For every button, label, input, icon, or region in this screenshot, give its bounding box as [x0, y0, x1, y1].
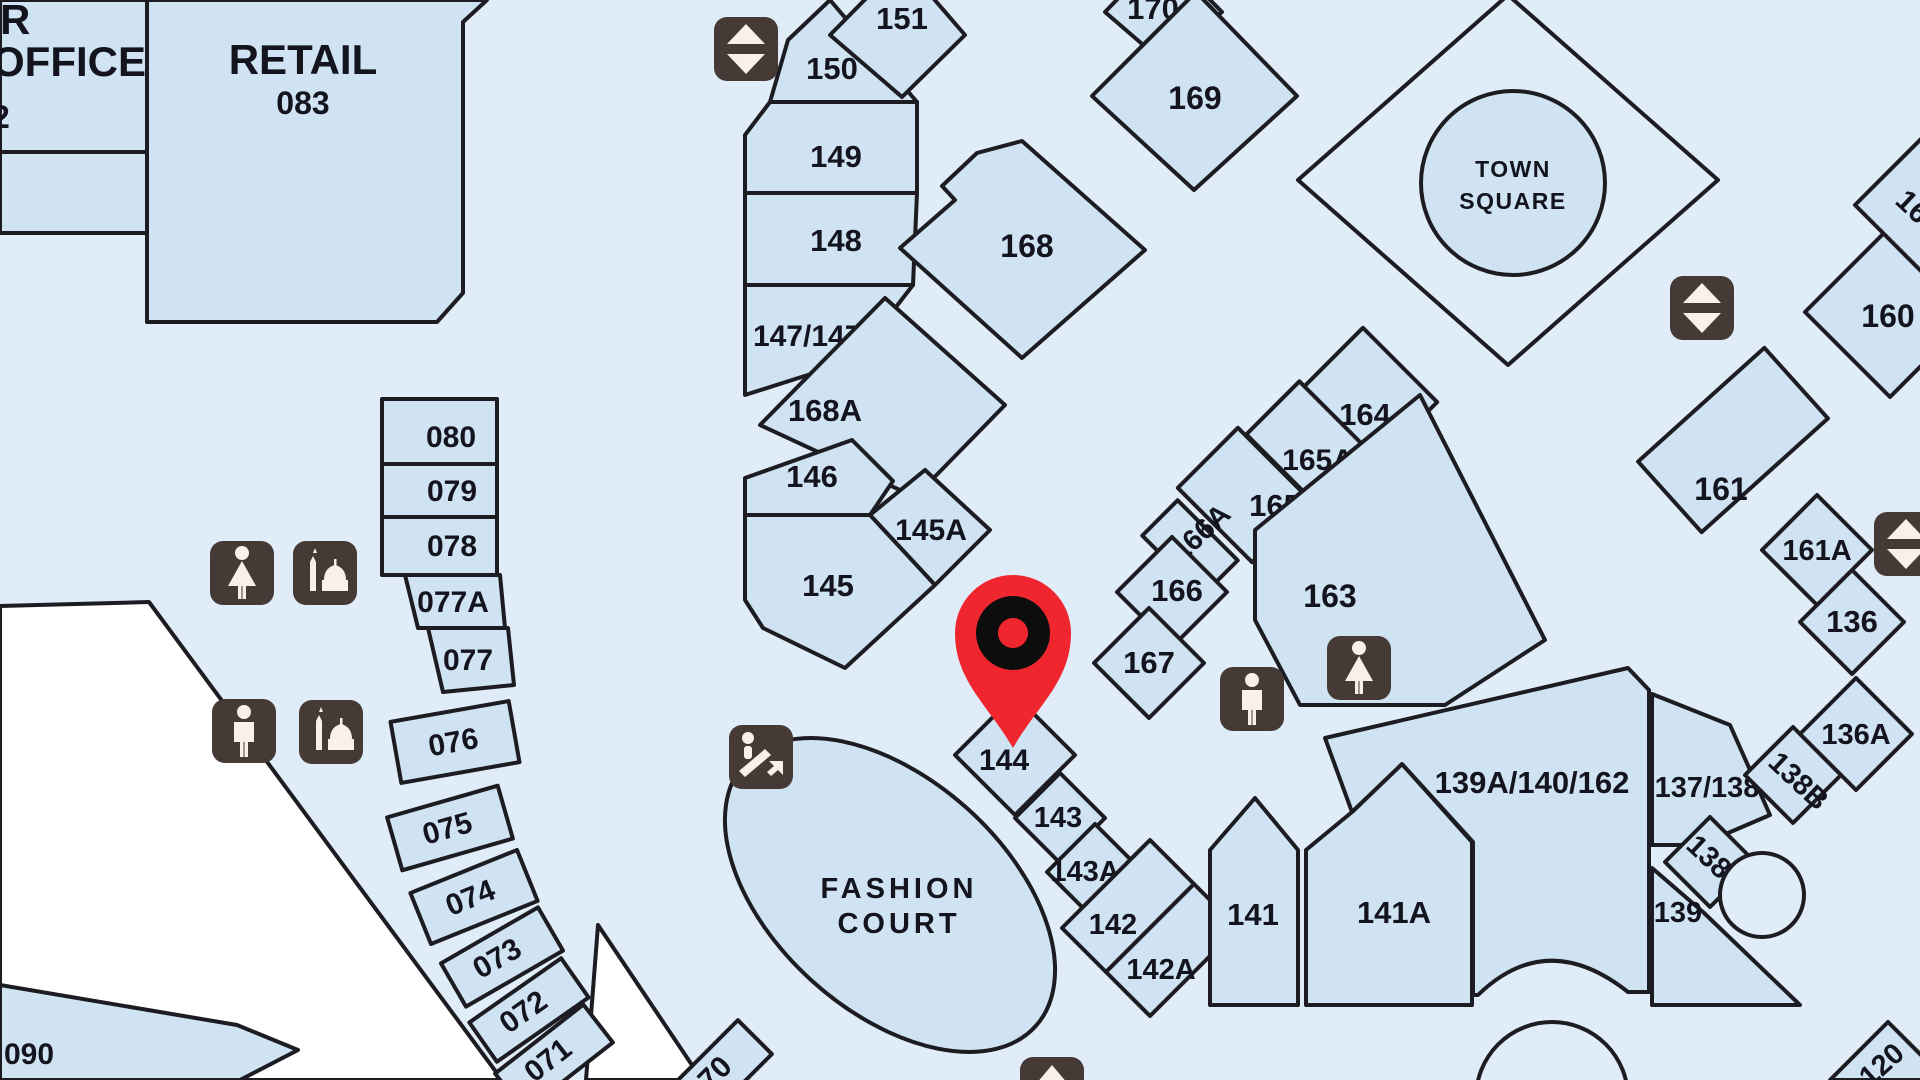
unit-078[interactable]: 078 [382, 517, 497, 575]
kiosk-circle [1720, 853, 1804, 937]
svg-text:163: 163 [1303, 578, 1356, 614]
womens-restroom-icon [1327, 636, 1391, 700]
svg-text:078: 078 [427, 530, 477, 563]
prayer-room-icon [293, 541, 357, 605]
prayer-room-icon [299, 700, 363, 764]
womens-restroom-icon [210, 541, 274, 605]
svg-text:169: 169 [1168, 80, 1221, 116]
unit-office[interactable]: R OFFICE 2 [0, 0, 147, 152]
elevator-icon [714, 17, 778, 81]
svg-text:139: 139 [1654, 897, 1702, 929]
elevator-icon [1670, 276, 1734, 340]
svg-text:136A: 136A [1821, 719, 1890, 751]
svg-text:168: 168 [1000, 228, 1053, 264]
town-square-label: TOWN [1475, 156, 1551, 182]
svg-text:166: 166 [1151, 573, 1203, 608]
svg-text:142: 142 [1089, 909, 1137, 941]
unit-080[interactable]: 080 [382, 399, 497, 464]
elevator-icon [1874, 512, 1920, 576]
svg-text:150: 150 [806, 51, 858, 86]
unit-148[interactable]: 148 [745, 193, 917, 285]
svg-text:141: 141 [1227, 897, 1279, 932]
svg-text:090: 090 [4, 1038, 54, 1071]
svg-text:142A: 142A [1126, 954, 1195, 986]
svg-text:139A/140/162: 139A/140/162 [1435, 765, 1630, 800]
mens-restroom-icon [1220, 667, 1284, 731]
office-partial-label: R [0, 0, 30, 43]
retail-number: 083 [276, 85, 329, 121]
svg-text:167: 167 [1123, 645, 1175, 680]
svg-text:145A: 145A [895, 514, 967, 547]
svg-text:145: 145 [802, 568, 854, 603]
svg-text:148: 148 [810, 223, 862, 258]
unit-149[interactable]: 149 [745, 102, 917, 193]
unit-retail-083[interactable]: RETAIL 083 [147, 0, 487, 322]
mens-restroom-icon [212, 699, 276, 763]
unit-077a[interactable]: 077A [405, 575, 505, 628]
fashion-court-label: COURT [837, 908, 960, 940]
svg-text:151: 151 [876, 1, 928, 36]
svg-text:077: 077 [443, 644, 493, 677]
unit-077[interactable]: 077 [428, 628, 514, 692]
svg-text:136: 136 [1826, 604, 1878, 639]
office-label: OFFICE [0, 38, 146, 85]
map-canvas: TOWN SQUARE FASHION COURT R OFFICE 2 RET… [0, 0, 1920, 1080]
svg-text:143: 143 [1034, 802, 1082, 834]
unit-unlabeled[interactable] [0, 152, 147, 233]
mall-map: TOWN SQUARE FASHION COURT R OFFICE 2 RET… [0, 0, 1920, 1080]
unit-079[interactable]: 079 [382, 464, 497, 517]
svg-text:137/138: 137/138 [1655, 772, 1760, 804]
svg-text:141A: 141A [1357, 895, 1431, 930]
svg-text:161: 161 [1694, 471, 1747, 507]
svg-text:160: 160 [1861, 298, 1914, 334]
escalator-icon [729, 725, 793, 789]
office-number: 2 [0, 99, 10, 135]
svg-text:079: 079 [427, 475, 477, 508]
svg-text:080: 080 [426, 421, 476, 454]
svg-text:146: 146 [786, 459, 838, 494]
fashion-court-label: FASHION [821, 873, 978, 905]
svg-text:161A: 161A [1782, 535, 1851, 567]
svg-text:168A: 168A [788, 393, 862, 428]
retail-label: RETAIL [229, 36, 378, 83]
svg-text:149: 149 [810, 139, 862, 174]
svg-text:144: 144 [979, 744, 1029, 777]
town-square-label: SQUARE [1459, 188, 1566, 214]
up-arrow-icon [1020, 1057, 1084, 1080]
svg-text:077A: 077A [417, 586, 489, 619]
